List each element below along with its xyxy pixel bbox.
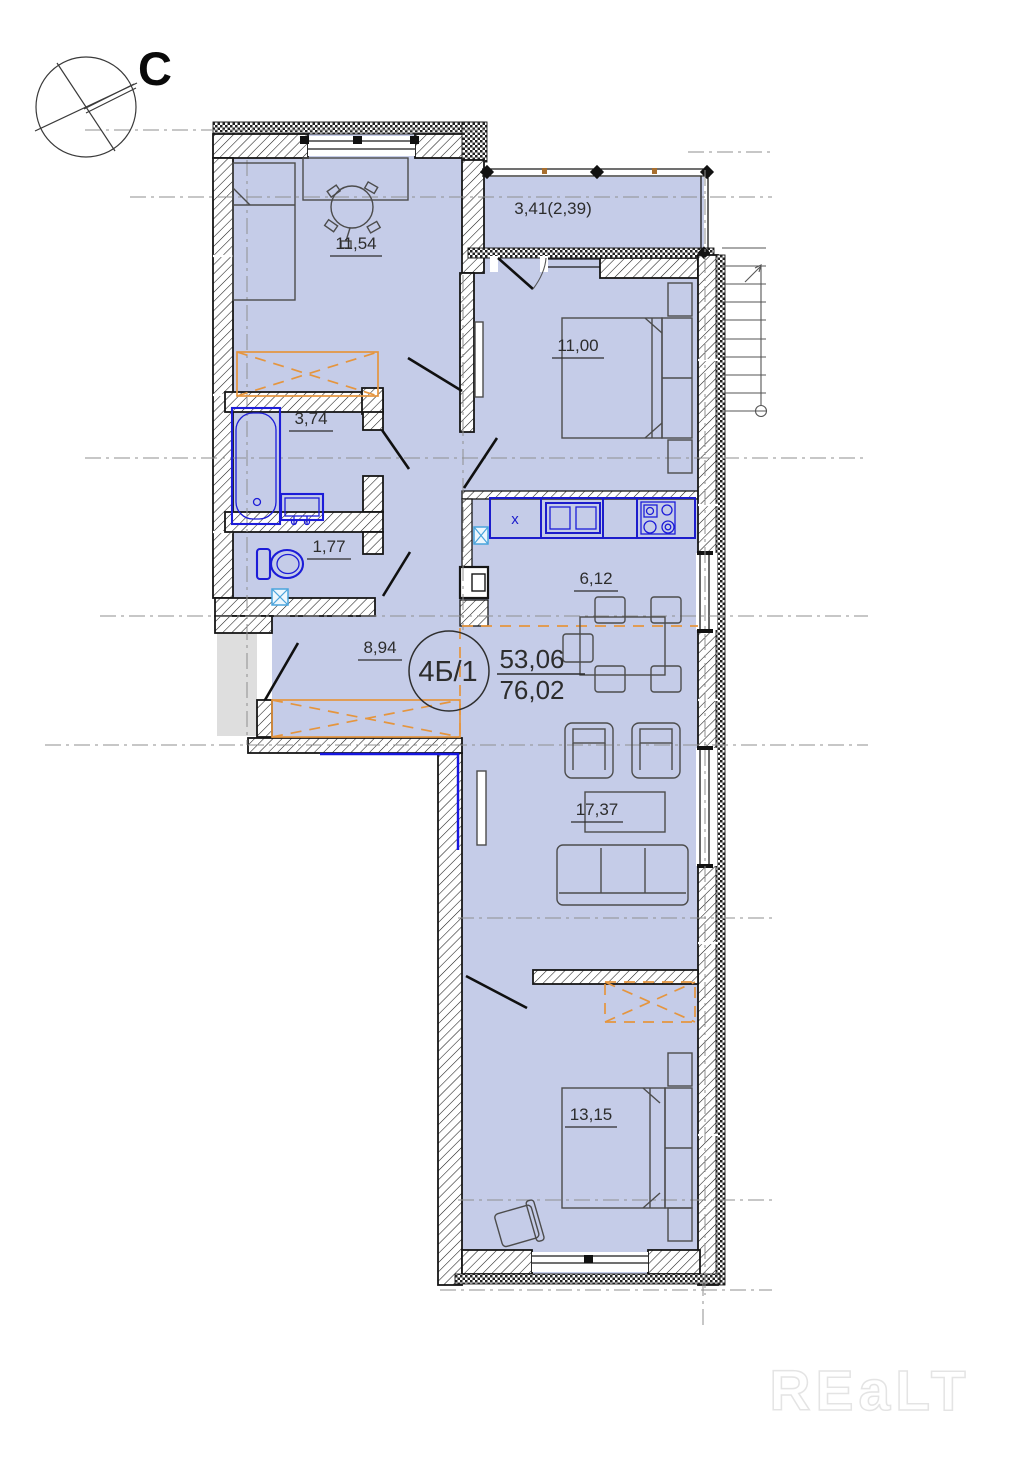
tv-panel-bedroom — [475, 322, 483, 397]
insulation-strip-top — [213, 122, 483, 134]
duct-wall — [460, 600, 488, 626]
wall-top-left — [213, 134, 308, 158]
tv-panel-living — [477, 771, 486, 845]
wall-corridor-right — [460, 273, 474, 432]
entrance-landing — [217, 633, 257, 736]
label-hall: 8,94 — [363, 638, 396, 657]
insulation-bottom — [455, 1274, 720, 1284]
glazing-post — [590, 165, 604, 179]
entrance-jamb — [257, 700, 272, 737]
kitchen-unit-label: x — [511, 511, 519, 528]
insulation-corner — [462, 122, 487, 162]
wall-bathroom-right-b — [363, 476, 383, 512]
compass: С — [35, 42, 172, 157]
wall-bottom-left-seg — [462, 1250, 532, 1274]
label-bedroom-13-15: 13,15 — [570, 1105, 613, 1124]
vent-box-kitchen — [474, 527, 488, 544]
glazing-post — [700, 165, 714, 179]
duct-shaft — [460, 567, 488, 598]
watermark-logo: REaLT — [769, 1359, 970, 1423]
insulation-right — [716, 255, 725, 1285]
label-wc: 1,77 — [312, 537, 345, 556]
insulation-loggia — [468, 248, 714, 258]
label-loggia: 3,41(2,39) — [514, 199, 592, 218]
compass-needle — [84, 84, 134, 109]
glazing-tick — [652, 168, 657, 174]
glazing-tick — [542, 168, 547, 174]
area-total: 76,02 — [499, 675, 564, 705]
label-kitchen: 6,12 — [579, 569, 612, 588]
apartment-number: 4Б/1 — [418, 656, 477, 688]
floor-plan-svg: x — [0, 0, 1023, 1466]
window-dining — [696, 553, 717, 630]
window-living — [696, 748, 717, 866]
vent-box-wc — [272, 589, 288, 605]
wall-wc-bottom — [215, 598, 375, 616]
wall-wc-right — [363, 532, 383, 554]
wall-bathroom-right-a — [363, 412, 383, 430]
wall-wc-bottom-step — [215, 616, 272, 633]
compass-north-label: С — [138, 42, 172, 95]
wall-below-loggia — [600, 258, 698, 278]
floorplan-page: x — [0, 0, 1023, 1466]
label-living: 17,37 — [576, 800, 619, 819]
staircase — [722, 248, 767, 417]
area-living: 53,06 — [499, 644, 564, 674]
wall-bottom-right-seg — [648, 1250, 700, 1274]
label-bedroom-11-00: 11,00 — [557, 336, 598, 355]
label-room-11-54: 11,54 — [335, 234, 376, 253]
label-bathroom: 3,74 — [294, 409, 327, 428]
